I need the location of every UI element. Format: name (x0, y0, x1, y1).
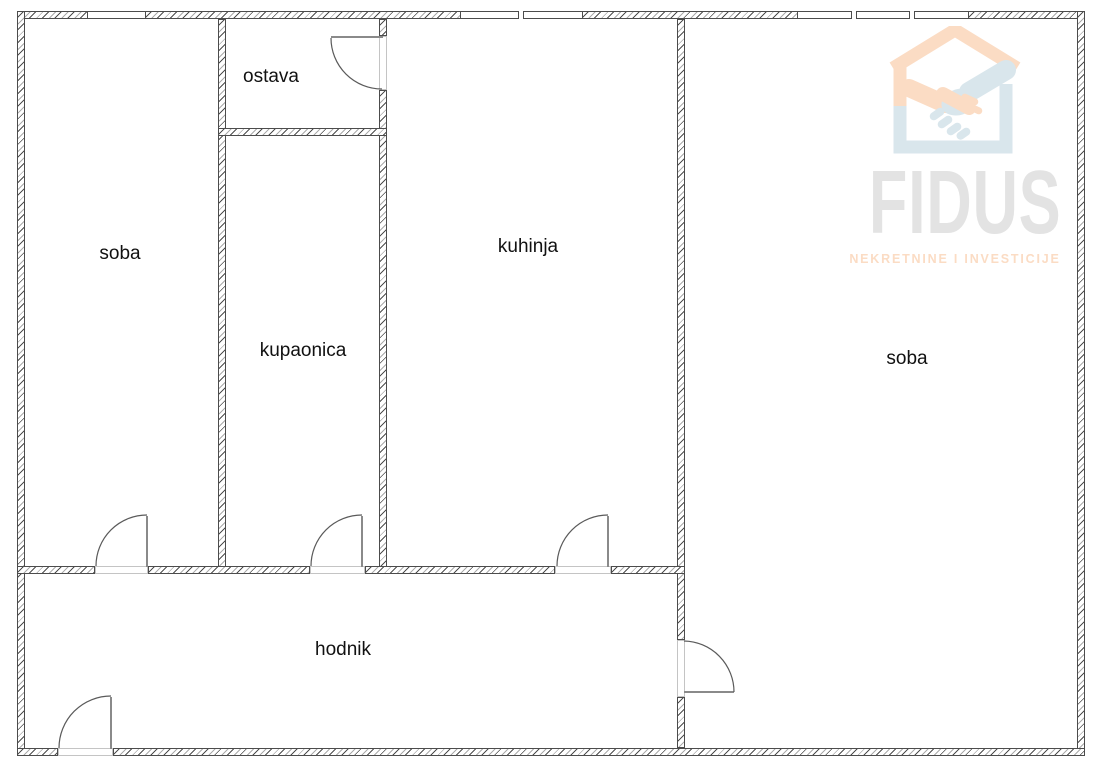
door-swing-layer (0, 0, 1098, 772)
room-label-ostava: ostava (243, 66, 299, 88)
room-label-kupaonica: kupaonica (260, 340, 347, 362)
door-kupaonica (311, 515, 362, 567)
room-label-kuhinja: kuhinja (498, 236, 558, 258)
floorplan-canvas: FIDUS NEKRETNINE I INVESTICIJE (0, 0, 1098, 772)
door-entry-hodnik (59, 696, 111, 749)
door-soba-right (684, 641, 734, 692)
room-label-hodnik: hodnik (315, 639, 371, 661)
room-label-soba-left: soba (99, 243, 140, 265)
door-ostava (331, 37, 383, 89)
room-label-soba-right: soba (886, 348, 927, 370)
door-kuhinja (557, 515, 608, 567)
door-soba-left (96, 515, 147, 567)
